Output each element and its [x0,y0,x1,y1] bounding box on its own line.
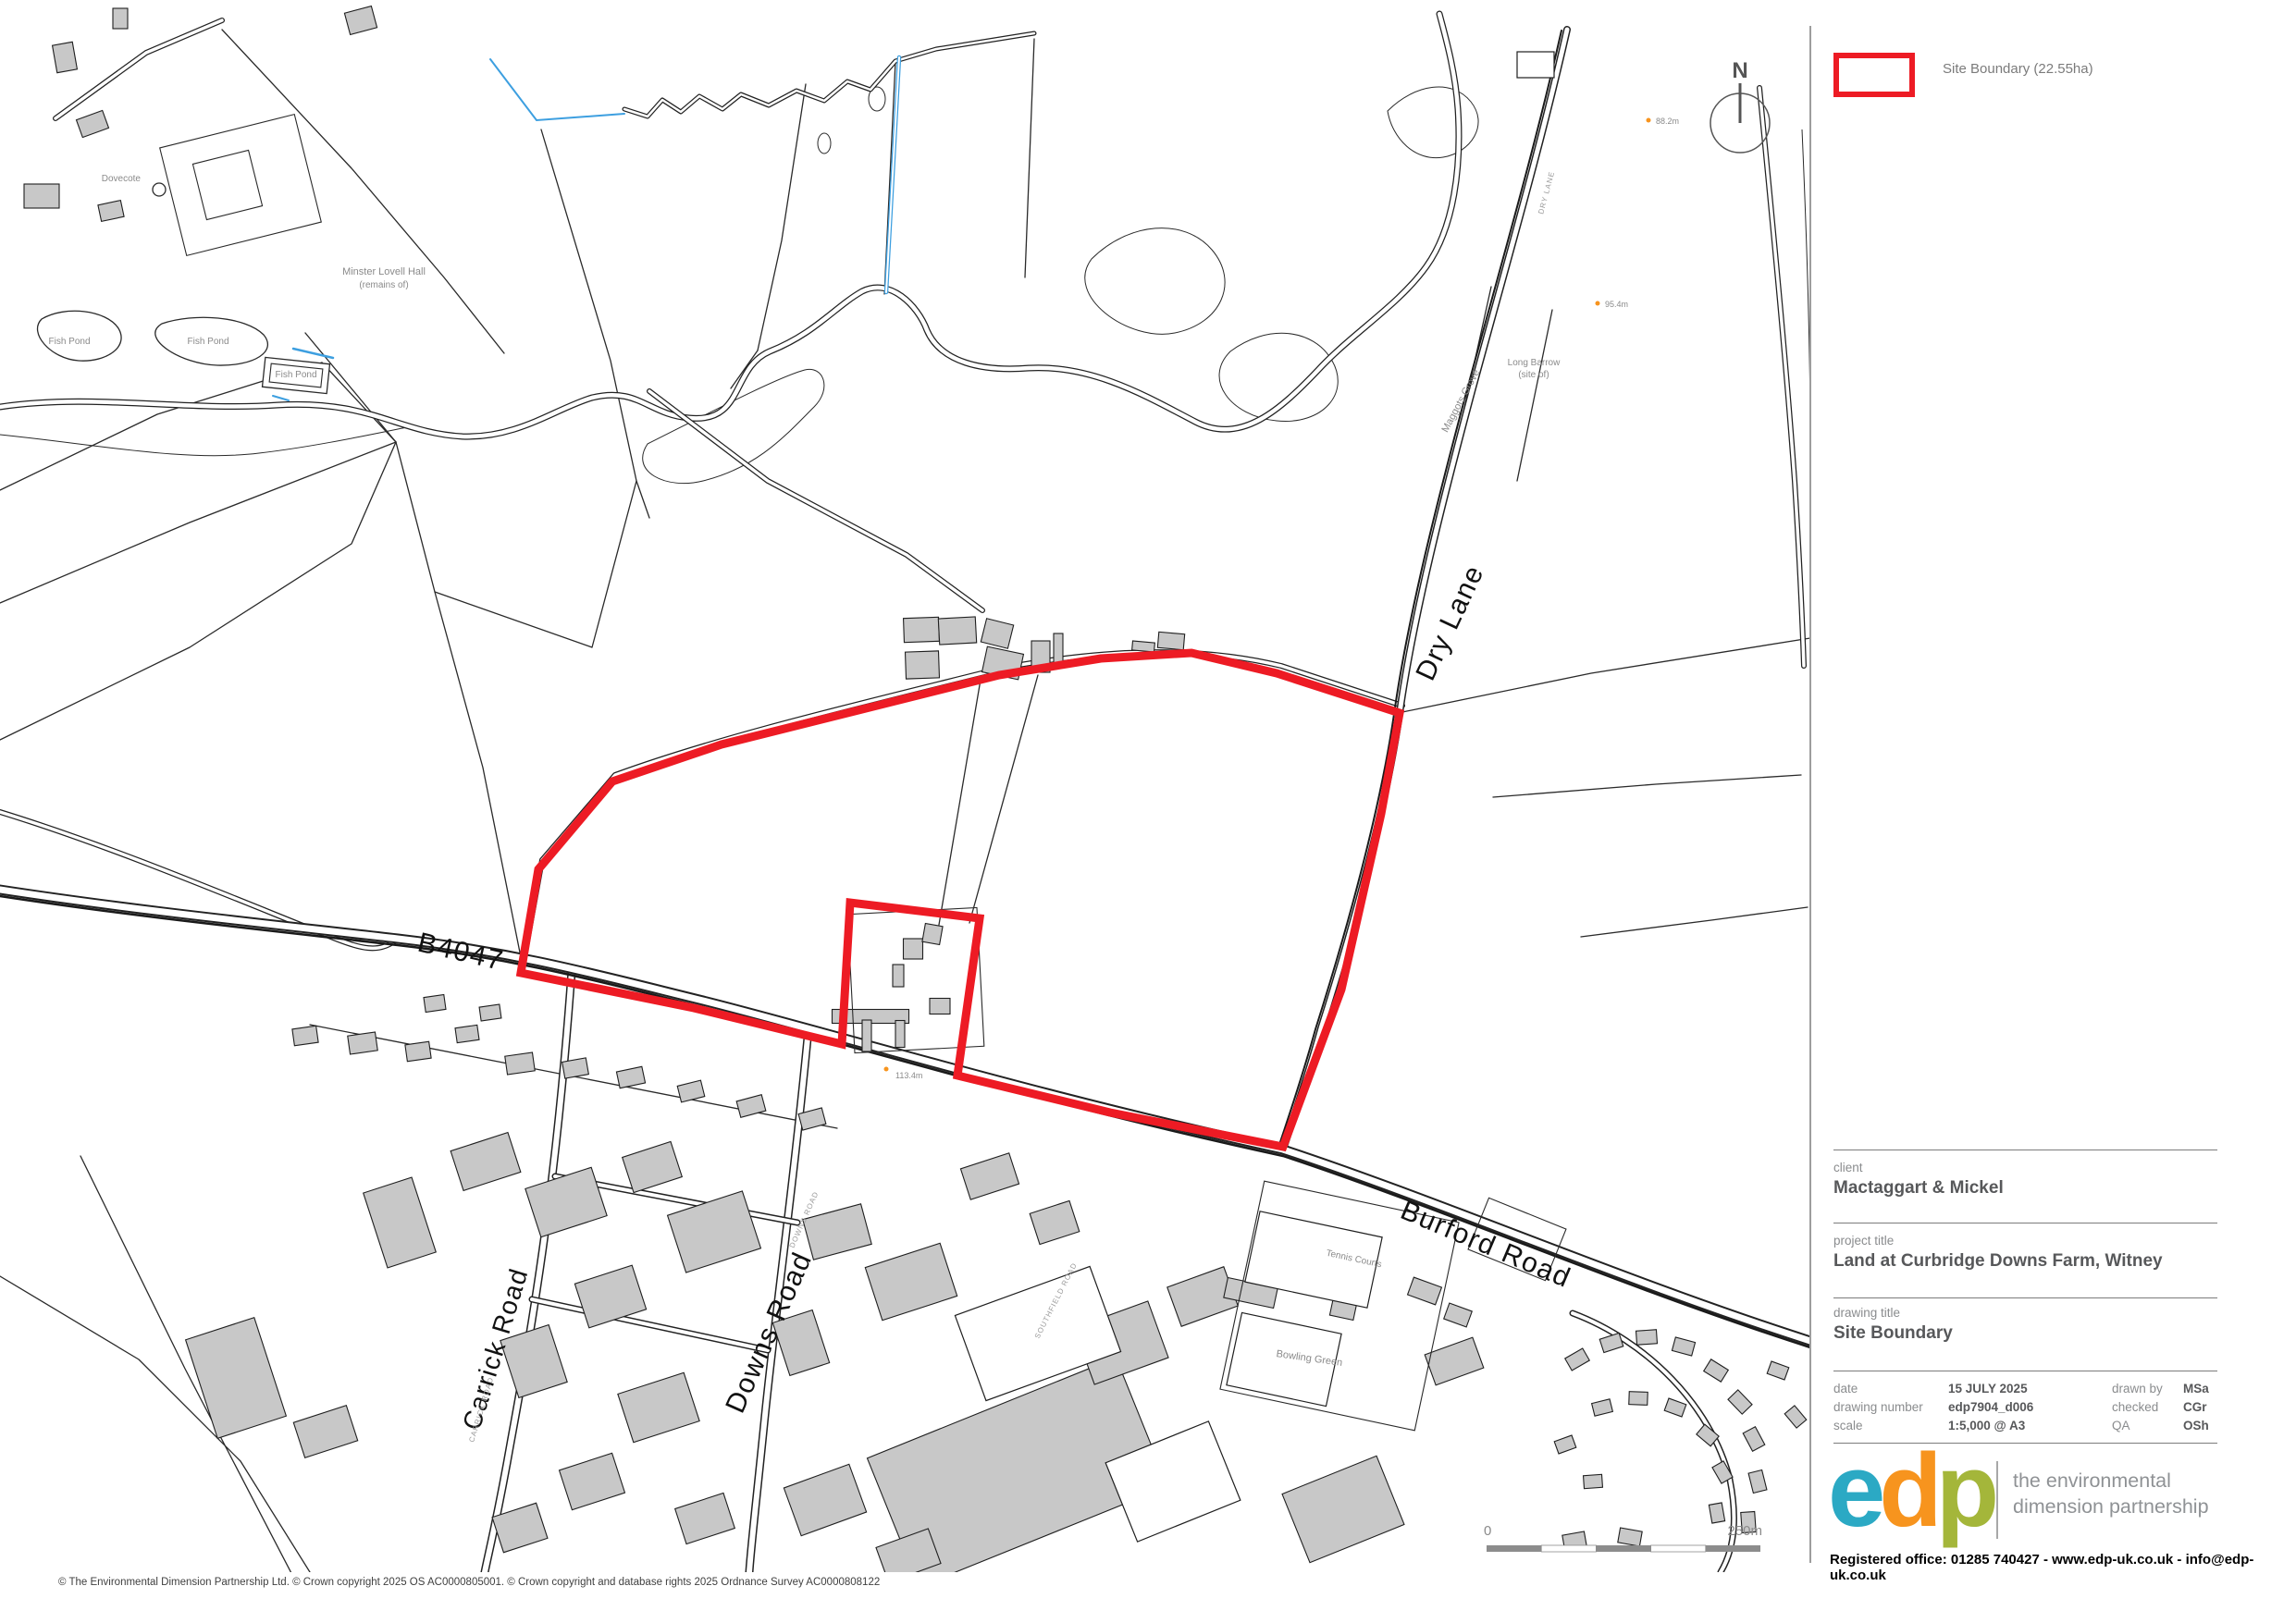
road-label-dry-lane-small: DRY LANE [1537,170,1556,215]
drawing-number-label: drawing number [1833,1400,1923,1414]
map-building [98,201,124,222]
map-building [344,6,376,35]
map-building [904,939,923,959]
map-building [1282,1456,1404,1562]
buildings [24,6,1807,1572]
map-building [895,1021,905,1048]
map-building [1704,1359,1729,1382]
map-building [1565,1348,1590,1371]
edp-logo: edp [1828,1439,1993,1543]
drawing-title-label: drawing title [1833,1306,1900,1320]
place-label-fish-pond-2: Fish Pond [187,337,228,347]
date-value: 15 JULY 2025 [1948,1382,2028,1396]
registered-office: Registered office: 01285 740427 - www.ed… [1830,1552,2296,1583]
map-building [1584,1474,1603,1488]
fish-ponds [38,311,330,393]
place-label-long-barrow-2: (site of) [1518,370,1549,380]
map-building [1444,1303,1473,1327]
place-label-fish-pond-1: Fish Pond [48,337,90,347]
edp-tagline: the environmental dimension partnership [2013,1469,2209,1520]
spot-height-3: 113.4m [895,1071,922,1080]
place-label-hall-2: (remains of) [359,280,408,290]
map-building [1618,1528,1642,1546]
qa-value: OSh [2183,1419,2209,1432]
map-building [1030,1200,1080,1244]
place-label-long-barrow: Long Barrow [1508,358,1561,368]
drawing-sheet: B4047 Dry Lane Burford Road Downs Road C… [0,0,2296,1623]
map-building [862,1020,871,1051]
sheet-divider [1809,26,1811,1563]
map-building [1709,1503,1724,1523]
map-canvas: B4047 Dry Lane Burford Road Downs Road C… [0,0,1810,1572]
edp-logo-letter-d: d [1879,1439,1935,1543]
map-building [1672,1337,1695,1356]
legend-site-boundary-swatch [1833,53,1915,97]
map-building [113,8,128,29]
drawn-by-label: drawn by [2112,1382,2163,1396]
map-plot [160,115,322,256]
spot-height-1: 88.2m [1656,117,1679,126]
scale-bar-start: 0 [1484,1523,1491,1539]
project-title-label: project title [1833,1234,1894,1248]
map-building [479,1004,501,1021]
map-building [293,1406,357,1458]
map-building [1408,1277,1442,1305]
map-building [1664,1398,1686,1417]
map-building [1743,1427,1765,1451]
map-building [1748,1470,1767,1494]
map-building [922,924,943,945]
map-plot [192,150,262,219]
map-building [1425,1337,1484,1385]
map-building [960,1153,1018,1199]
edp-logo-letter-p: p [1936,1439,1993,1543]
streams-blue [273,57,899,400]
field-boundaries [0,30,1810,1572]
project-title-value: Land at Curbridge Downs Farm, Witney [1833,1251,2163,1272]
spot-height-dot-3 [884,1067,889,1072]
map-building [292,1026,318,1045]
map-building [562,1058,589,1078]
date-label: date [1833,1382,1858,1396]
rule-4 [1833,1371,2217,1371]
map-building [616,1066,645,1088]
map-building [736,1095,766,1118]
map-building [1054,633,1063,665]
map-building [405,1041,431,1061]
map-building [186,1318,287,1439]
map-building [76,110,108,137]
map-building [24,184,59,208]
map-building [981,619,1013,648]
map-building [893,965,904,987]
logo-divider-bar [1996,1461,1998,1539]
map-building [1629,1392,1648,1406]
map-building [930,999,950,1014]
map-building [1554,1435,1576,1454]
dovecote-circle [153,183,166,196]
client-label: client [1833,1161,1863,1174]
map-building [451,1133,521,1191]
map-building [618,1372,699,1442]
rule-2 [1833,1223,2217,1223]
drawn-by-value: MSa [2183,1382,2209,1396]
checked-value: CGr [2183,1400,2207,1414]
rule-3 [1833,1297,2217,1298]
legend-site-boundary-label: Site Boundary (22.55ha) [1943,61,2093,77]
map-building [1784,1406,1807,1428]
map-building [1767,1361,1789,1380]
roads [0,20,1810,1572]
spot-height-dot-2 [1596,301,1600,306]
map-plot [1517,52,1554,78]
site-plan-map: B4047 Dry Lane Burford Road Downs Road C… [0,0,1810,1572]
map-building [906,651,940,679]
map-building [560,1453,625,1509]
map-building [424,995,446,1013]
map-building [525,1167,607,1236]
map-building [455,1025,479,1042]
north-arrow-label: N [1732,58,1747,83]
place-label-fish-pond-3: Fish Pond [275,370,316,380]
map-building [1728,1390,1752,1414]
qa-label: QA [2112,1419,2130,1432]
spot-height-2: 95.4m [1605,300,1628,309]
map-building [784,1464,866,1535]
drawing-title-value: Site Boundary [1833,1323,1953,1344]
map-building [364,1177,437,1268]
edp-logo-letter-e: e [1828,1439,1879,1543]
scale-bar-end: 250m [1727,1523,1762,1539]
scale-label: scale [1833,1419,1863,1432]
site-boundary-outline [521,653,1400,1147]
map-building [348,1032,377,1054]
map-building [1636,1330,1658,1345]
map-building [53,42,78,72]
map-building [1592,1399,1613,1416]
map-building [677,1080,705,1102]
edp-tagline-line1: the environmental [2013,1469,2209,1494]
scale-value: 1:5,000 @ A3 [1948,1419,2025,1432]
edp-tagline-line2: dimension partnership [2013,1494,2209,1520]
map-building [803,1204,871,1260]
place-label-hall: Minster Lovell Hall [342,266,426,277]
map-building [1157,632,1184,649]
map-building [938,617,976,645]
map-building [865,1243,957,1320]
map-building [675,1493,735,1543]
spot-height-dot-1 [1647,118,1651,123]
river-windrush [0,14,1459,436]
checked-label: checked [2112,1400,2158,1414]
map-building [1599,1333,1623,1352]
drawing-number-value: edp7904_d006 [1948,1400,2033,1414]
map-building [904,617,940,642]
map-building [505,1052,535,1075]
copyright-note: © The Environmental Dimension Partnershi… [58,1577,880,1588]
map-building [623,1141,683,1192]
client-value: Mactaggart & Mickel [1833,1178,2004,1199]
road-label-b4047: B4047 [414,928,506,977]
map-building [1132,641,1155,652]
place-label-dovecote: Dovecote [102,174,142,184]
rule-1 [1833,1150,2217,1150]
